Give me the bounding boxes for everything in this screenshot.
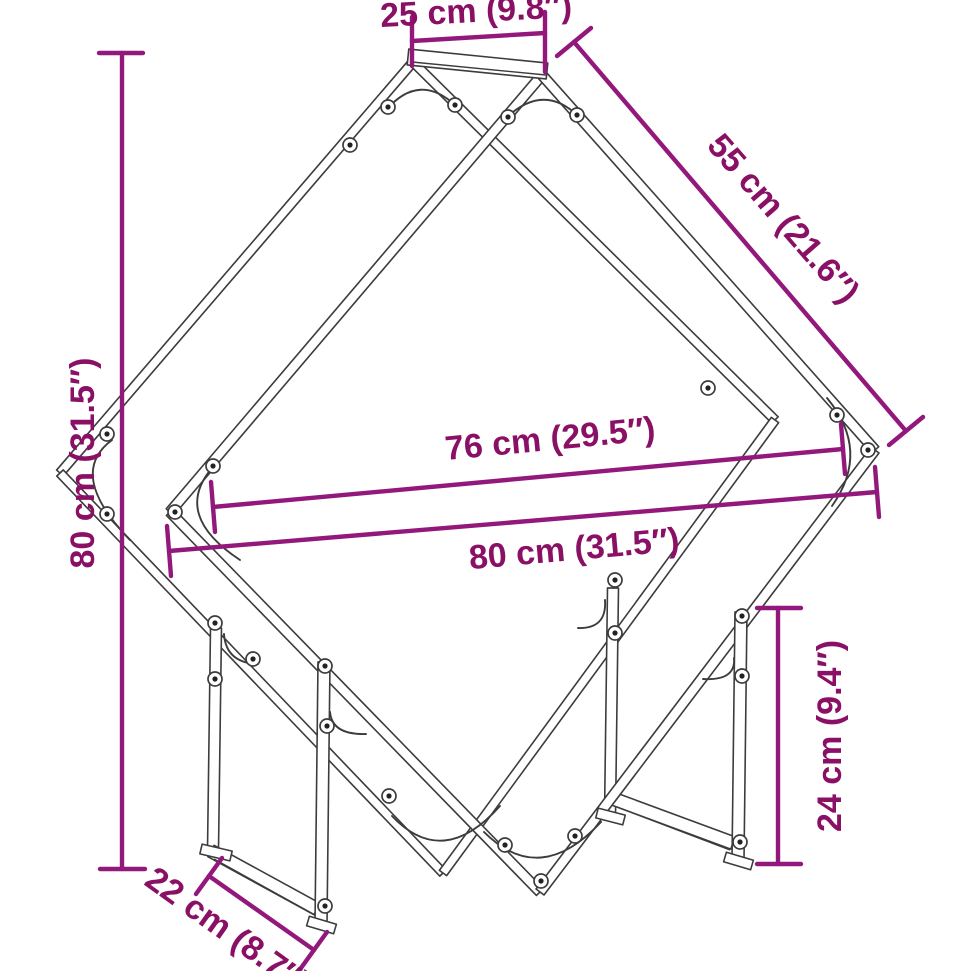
firewood-rack-drawing: 25 cm (9.8″)55 cm (21.6″)80 cm (31.5″)76…	[0, 0, 970, 971]
tube-front-left-leg	[315, 662, 330, 924]
tube-back-upper-right	[410, 59, 778, 423]
screw-center	[452, 102, 457, 107]
dimension-label: 76 cm (29.5″)	[443, 410, 657, 468]
screw-center	[172, 509, 177, 514]
screw-center	[210, 463, 215, 468]
dimension-tick	[889, 417, 923, 445]
tube-back-left-leg	[208, 628, 222, 850]
dimension-base-depth: 22 cm (8.7″)	[138, 858, 327, 971]
dimension-tick	[841, 424, 845, 474]
dimension-leg-height: 24 cm (9.4″)	[757, 608, 849, 864]
screw-center	[104, 511, 109, 516]
screw-center	[739, 673, 744, 678]
screw-center	[538, 878, 543, 883]
screw-center	[212, 620, 217, 625]
tube-back-upper-left	[57, 59, 417, 476]
tube-back-left-foot	[200, 844, 232, 861]
screw-center	[505, 114, 510, 119]
dimension-label: 22 cm (8.7″)	[138, 860, 316, 971]
dimension-line	[412, 33, 545, 41]
screw-center	[347, 142, 352, 147]
dimension-label: 24 cm (9.4″)	[811, 640, 849, 832]
dimension-line	[574, 42, 906, 431]
screw-center	[322, 663, 327, 668]
screw-center	[212, 676, 217, 681]
bracket-back-right-leg	[578, 600, 605, 628]
dimension-diagram: 25 cm (9.8″)55 cm (21.6″)80 cm (31.5″)76…	[0, 0, 970, 971]
dimension-overall-width: 80 cm (31.5″)	[167, 467, 879, 577]
detail-line	[214, 859, 315, 915]
screw-center	[865, 447, 870, 452]
dimension-label: 80 cm (31.5″)	[64, 358, 102, 569]
screw-center	[612, 577, 617, 582]
screw-center	[324, 723, 329, 728]
screw-center	[322, 903, 327, 908]
screw-center	[574, 112, 579, 117]
screw-center	[612, 630, 617, 635]
dimension-tick	[875, 467, 879, 517]
screw-center	[739, 613, 744, 618]
dimension-height: 80 cm (31.5″)	[64, 53, 145, 869]
tube-right-base-rail	[612, 793, 736, 849]
screw-center	[250, 656, 255, 661]
dimension-tick	[211, 482, 215, 532]
screw-center	[385, 104, 390, 109]
dimension-tick	[557, 28, 591, 56]
tube-front-right-leg	[732, 612, 747, 860]
screw-center	[737, 839, 742, 844]
screw-center	[104, 431, 109, 436]
dimension-inner-width: 76 cm (29.5″)	[211, 410, 845, 532]
screw-center	[502, 842, 507, 847]
dimension-label: 80 cm (31.5″)	[467, 521, 680, 577]
screw-center	[705, 385, 710, 390]
dimension-tick	[167, 526, 171, 576]
screw-center	[386, 793, 391, 798]
screw-center	[572, 833, 577, 838]
screw-center	[834, 412, 839, 417]
